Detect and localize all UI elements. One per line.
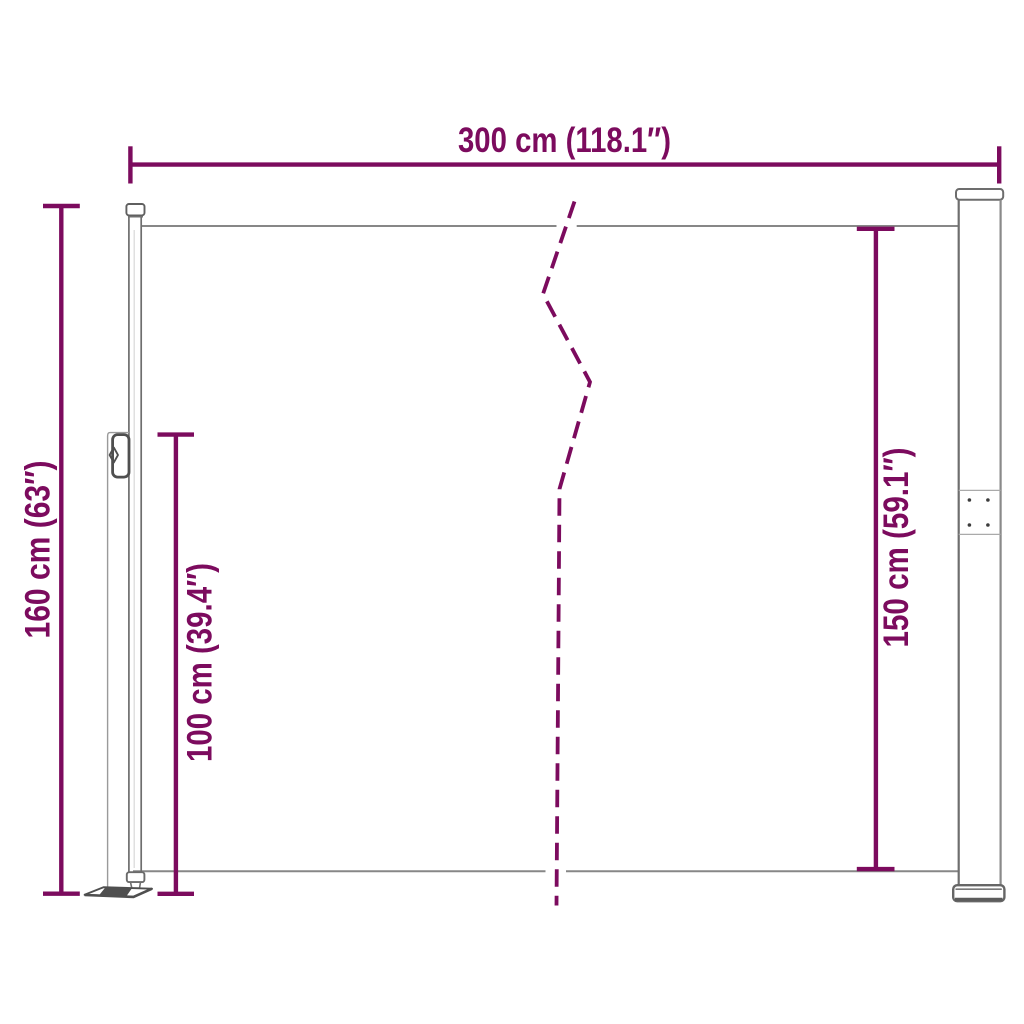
svg-text:100 cm (39.4″): 100 cm (39.4″) (181, 563, 220, 762)
svg-text:160 cm (63″): 160 cm (63″) (19, 461, 58, 639)
svg-text:300 cm (118.1″): 300 cm (118.1″) (458, 121, 671, 160)
svg-text:150 cm (59.1″): 150 cm (59.1″) (877, 448, 916, 648)
